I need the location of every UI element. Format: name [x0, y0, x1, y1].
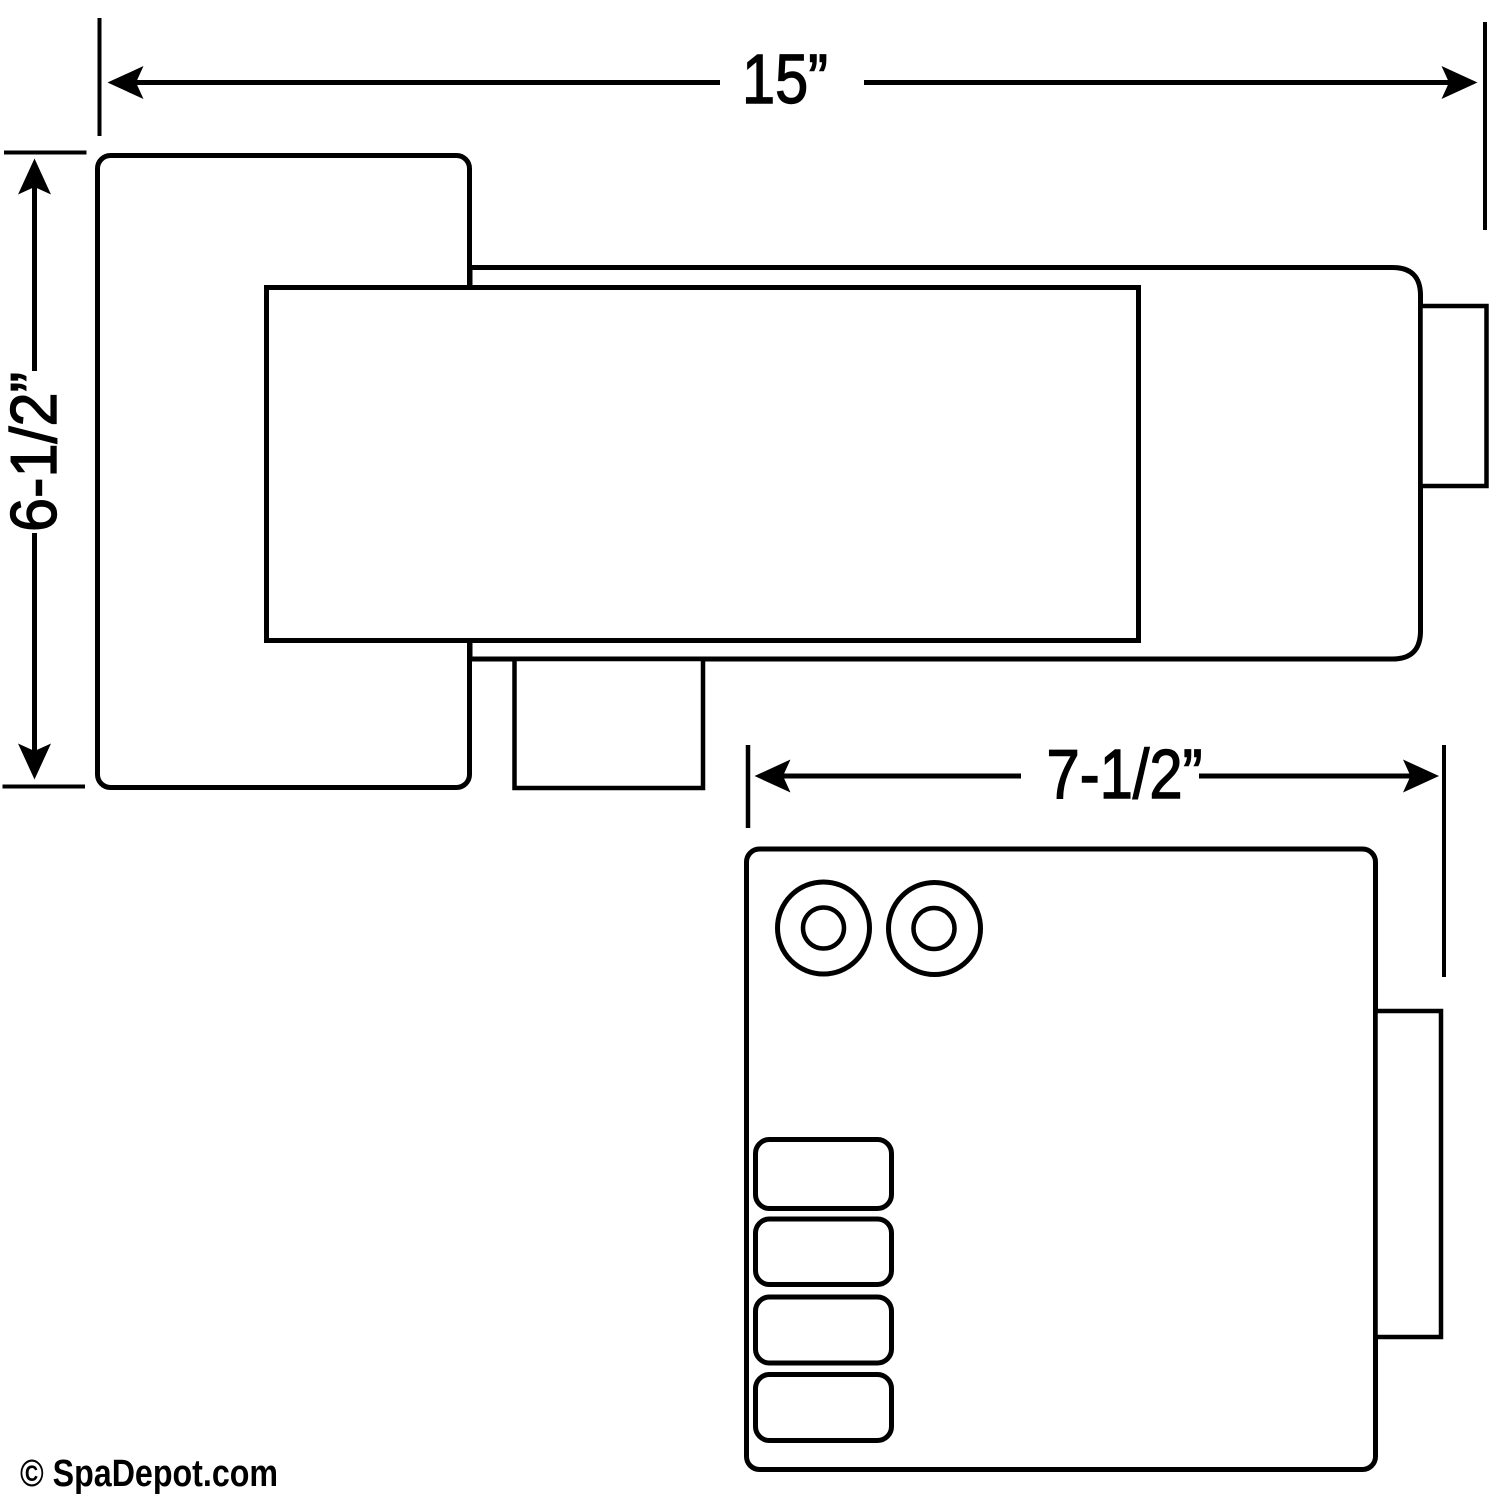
svg-text:15”: 15” — [742, 40, 828, 118]
svg-text:© SpaDepot.com: © SpaDepot.com — [20, 1453, 278, 1495]
svg-text:7-1/2”: 7-1/2” — [1047, 735, 1203, 813]
svg-text:6-1/2”: 6-1/2” — [0, 372, 70, 532]
